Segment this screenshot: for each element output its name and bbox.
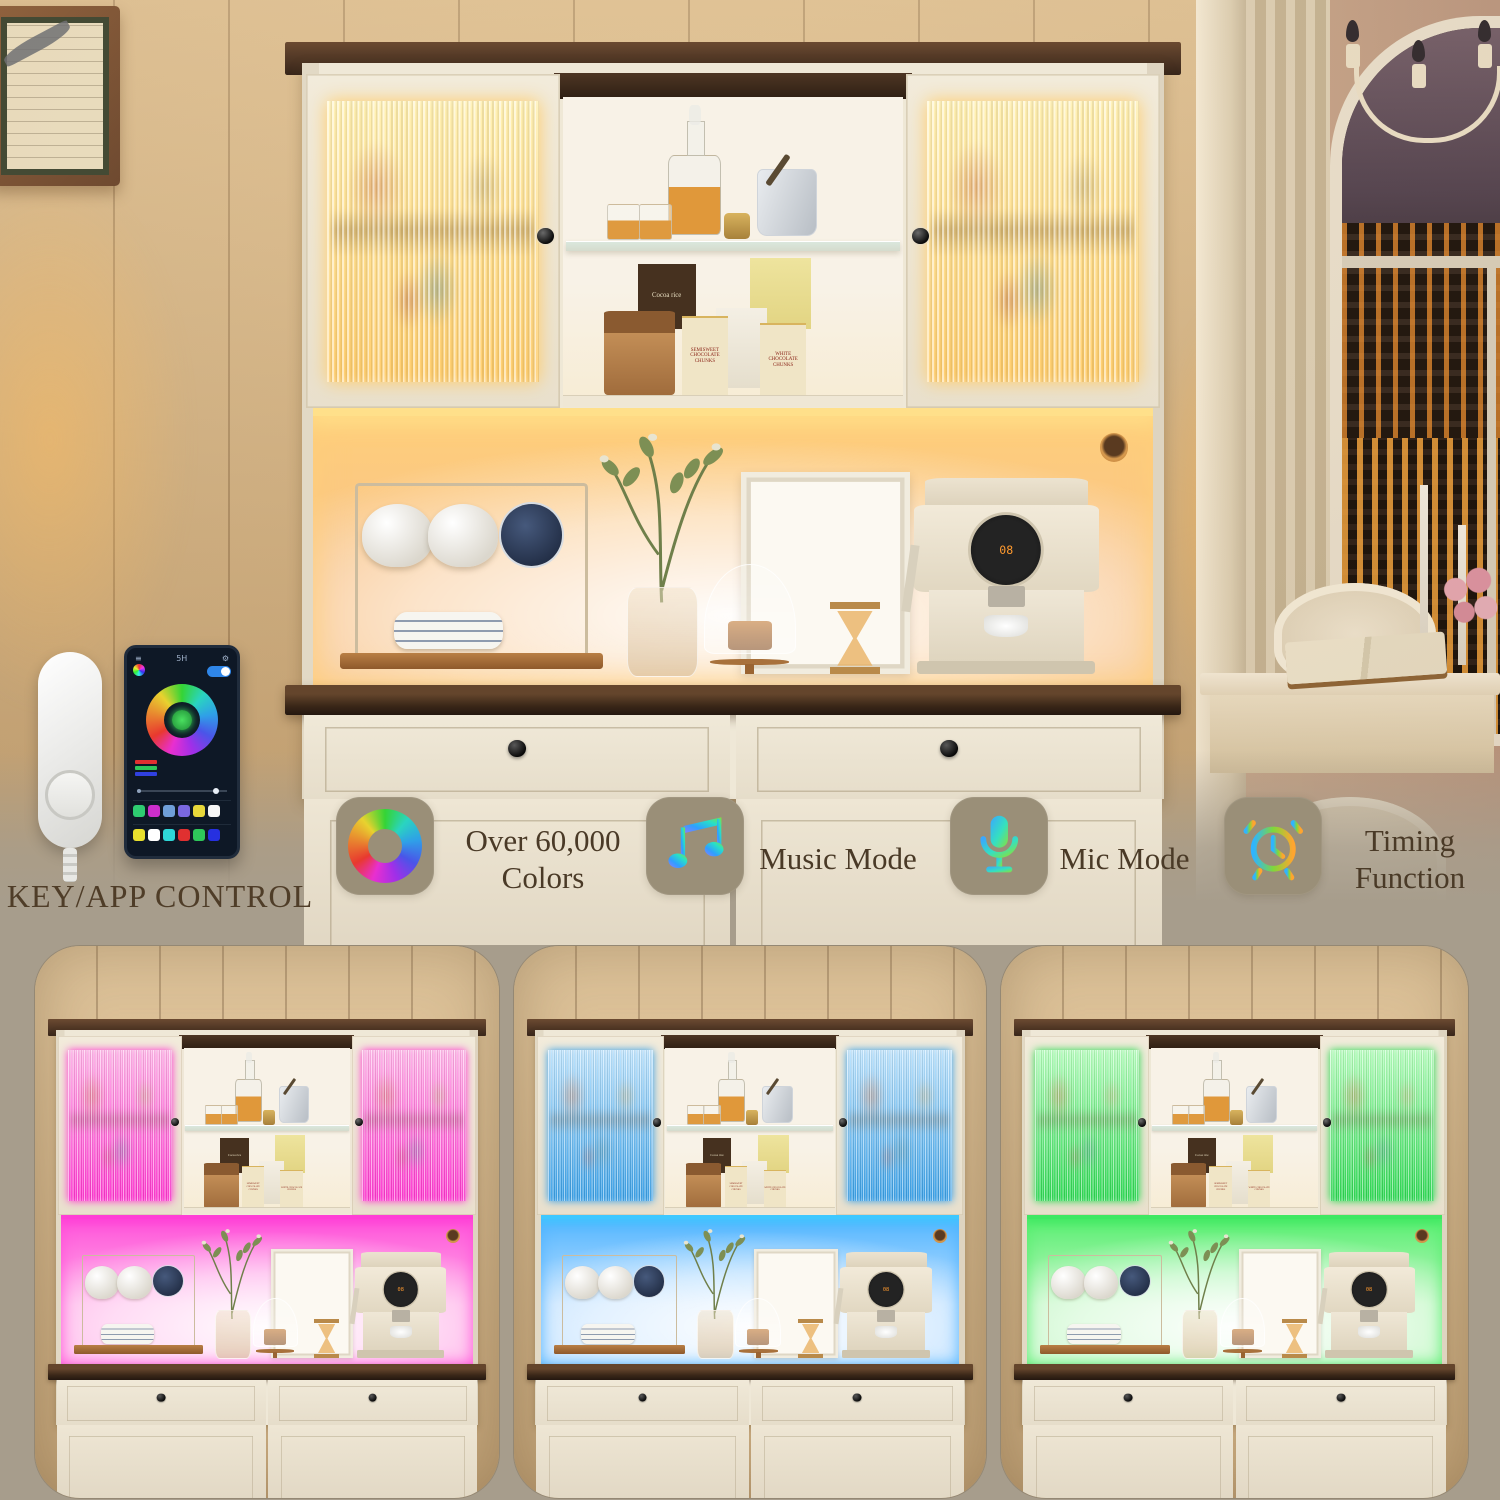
espresso-display-value: 08 [398, 1287, 404, 1293]
drawer-bevel [757, 727, 1141, 793]
door-knob [1323, 1118, 1331, 1126]
espresso-machine: 08 [914, 478, 1099, 675]
hutch-green: Cocoa rice SEMISWEET CHOCOLATE CHUNKS WH… [1020, 1019, 1450, 1425]
espresso-display-value: 08 [999, 543, 1013, 557]
candle-bulb [1412, 40, 1425, 62]
key-app-control-label: KEY/APP CONTROL [4, 878, 316, 915]
lower-door [1023, 1425, 1233, 1499]
drawer-knob [157, 1393, 166, 1402]
whiskey-glass [607, 204, 640, 240]
mug-rack [1048, 1255, 1162, 1354]
door-bevel [69, 1436, 253, 1499]
coffee-mug [362, 504, 432, 566]
door-knob [839, 1118, 847, 1126]
door-bevel [764, 1436, 951, 1499]
ice-bucket [757, 169, 817, 236]
cake-stand-stem [756, 1352, 760, 1357]
glass-door-right [1320, 1036, 1445, 1215]
cable-hole [446, 1229, 460, 1243]
variant-card-blue: Cocoa rice SEMISWEET CHOCOLATE CHUNKS WH… [513, 945, 987, 1499]
coffee-mug [565, 1266, 600, 1299]
espresso-group-head [877, 1310, 895, 1322]
glass-dome [1220, 1298, 1265, 1347]
glass-vase [627, 587, 699, 677]
remote-plug [63, 848, 77, 882]
drawer [268, 1380, 477, 1425]
color-legend [135, 760, 157, 778]
cake-cloche [695, 564, 804, 675]
counter-recess: 08 [1027, 1215, 1441, 1363]
semisweet-label: SEMISWEET CHOCOLATE CHUNKS [682, 347, 728, 366]
plate-stack [581, 1324, 635, 1344]
lower-door [1236, 1425, 1446, 1499]
countertop [1014, 1364, 1456, 1380]
cable-hole [933, 1229, 947, 1243]
paper-bag [204, 1163, 239, 1208]
drawer-knob [508, 740, 526, 758]
mug-rack [82, 1255, 195, 1354]
espresso-group-head [988, 586, 1025, 608]
wood-tray [340, 653, 603, 669]
shelf-base-board [563, 395, 903, 407]
drawer [536, 1380, 748, 1425]
drawer [1023, 1380, 1233, 1425]
door-bevel [281, 1436, 465, 1499]
glass-vase [697, 1310, 734, 1359]
glass-door-left [1024, 1036, 1149, 1215]
power-toggle [207, 666, 231, 677]
espresso-machine: 08 [840, 1252, 932, 1357]
fluted-glass-left [548, 1050, 653, 1201]
cocoa-box-label: Cocoa rice [710, 1154, 723, 1157]
glass-flutes [327, 101, 538, 382]
white-chocolate-label: WHITE CHOCOLATE CHUNKS [1248, 1186, 1271, 1192]
feature-line: Over 60,000 [438, 822, 648, 859]
coffee-mug [428, 504, 498, 566]
product-marketing-image: Cocoa rice SEMISWEET CHOCOLATE CHUNKS WH… [0, 0, 1500, 1500]
remote-button [45, 770, 95, 820]
counter-recess: 08 [541, 1215, 960, 1363]
lower-doors [57, 1425, 477, 1499]
cable-hole [1100, 433, 1129, 462]
cake-stand-stem [273, 1352, 277, 1357]
whiskey-glass [639, 204, 672, 240]
semisweet-chocolate-box: SEMISWEET CHOCOLATE CHUNKS [242, 1166, 264, 1209]
drawer [736, 715, 1162, 799]
mini-color-wheel-icon [133, 664, 145, 676]
coffee-mug [1084, 1266, 1119, 1299]
shelf-base-board [1151, 1207, 1319, 1214]
cake-cloche [731, 1298, 785, 1357]
shelf-base-board [184, 1207, 350, 1214]
glass-door-left [537, 1036, 664, 1215]
menu-icon: ≡ [135, 654, 142, 663]
coffee-mug [117, 1266, 151, 1299]
cocoa-box-label: Cocoa rice [1195, 1154, 1208, 1157]
coffee-mug [598, 1266, 633, 1299]
drawer-knob [638, 1393, 647, 1402]
espresso-display: 08 [869, 1272, 904, 1307]
door-knob [912, 228, 929, 245]
glass-door-right [836, 1036, 963, 1215]
door-knob [171, 1118, 179, 1126]
drawer-knob [940, 740, 958, 758]
lower-doors [536, 1425, 963, 1499]
candle-cup [1346, 44, 1360, 68]
glass-shelf [667, 1125, 833, 1131]
white-chocolate-box: WHITE CHOCOLATE CHUNKS [760, 323, 806, 395]
glass-door-right [906, 74, 1161, 409]
espresso-drip-tray [1325, 1350, 1412, 1357]
plate-stack [101, 1324, 154, 1344]
fluted-glass-left [1035, 1050, 1139, 1201]
window-sash [1342, 256, 1500, 268]
candle-bulb [1478, 20, 1491, 42]
drawer-row [1023, 1380, 1446, 1425]
remote-key [38, 652, 102, 848]
glass-dome [735, 1298, 781, 1347]
drawer-bevel [547, 1386, 738, 1421]
fluted-glass-right [847, 1050, 952, 1201]
cake-stand-stem [1241, 1352, 1245, 1357]
drawer-bevel [325, 727, 709, 793]
cake-stand-stem [745, 664, 754, 674]
mug-rack [562, 1255, 677, 1354]
hutch-blue: Cocoa rice SEMISWEET CHOCOLATE CHUNKS WH… [533, 1019, 967, 1425]
glass-flutes [548, 1050, 653, 1201]
lower-door [57, 1425, 266, 1499]
feature-line: Music Mode [748, 840, 928, 877]
espresso-group-head [392, 1310, 410, 1322]
fluted-glass-right [362, 1050, 465, 1201]
espresso-cup [984, 615, 1028, 637]
glass-vase [1182, 1310, 1218, 1359]
shelf-base-board [665, 1207, 834, 1214]
navy-mug [153, 1266, 183, 1296]
semisweet-chocolate-box: SEMISWEET CHOCOLATE CHUNKS [682, 316, 728, 396]
whiskey-decanter [1203, 1079, 1230, 1123]
plate-stack [1067, 1324, 1121, 1344]
gold-jar [263, 1110, 275, 1124]
glass-shelf [185, 1125, 348, 1131]
app-title: 5H [176, 654, 187, 663]
whiskey-decanter [235, 1079, 262, 1123]
hutch-center-soffit [554, 73, 912, 99]
pink-flowers [1434, 559, 1500, 635]
gear-icon: ⚙ [222, 654, 229, 663]
feature-line: Timing [1330, 822, 1490, 859]
glass-flutes [362, 1050, 465, 1201]
glass-vase [215, 1310, 251, 1359]
glass-flutes [68, 1050, 171, 1201]
drawer-row [57, 1380, 477, 1425]
hutch-cabinet: Cocoa rice SEMISWEET CHOCOLATE CHUNKS WH… [533, 1019, 967, 1425]
drawer-knob [1336, 1393, 1345, 1402]
warm-lamp-glow [0, 170, 190, 710]
cocoa-box-label: Cocoa rice [652, 293, 681, 300]
glass-shelf [566, 241, 899, 251]
semisweet-chocolate-box: SEMISWEET CHOCOLATE CHUNKS [1209, 1166, 1232, 1209]
drawer-row [304, 715, 1162, 799]
white-chocolate-box: WHITE CHOCOLATE CHUNKS [1248, 1170, 1271, 1208]
fluted-glass-left [68, 1050, 171, 1201]
whiskey-glass [1188, 1105, 1205, 1125]
candle-cup [1412, 64, 1426, 88]
hutch-cabinet: Cocoa rice SEMISWEET CHOCOLATE CHUNKS WH… [297, 42, 1169, 799]
mic-mode-tile [950, 797, 1048, 895]
hourglass [1282, 1319, 1307, 1358]
feature-line: Mic Mode [1052, 840, 1197, 877]
music-note-icon [659, 810, 732, 883]
coffee-mug [1051, 1266, 1086, 1299]
glass-door-right [352, 1036, 477, 1215]
semisweet-label: SEMISWEET CHOCOLATE CHUNKS [242, 1183, 264, 1192]
gold-jar [746, 1110, 759, 1124]
countertop [285, 685, 1181, 715]
hutch-cabinet: Cocoa rice SEMISWEET CHOCOLATE CHUNKS WH… [1020, 1019, 1450, 1425]
hourglass [798, 1319, 823, 1358]
drawer-knob [368, 1393, 377, 1402]
door-bevel [1036, 1436, 1221, 1499]
glass-flutes [1330, 1050, 1434, 1201]
whiskey-glass [205, 1105, 222, 1125]
feature-label-mic: Mic Mode [1052, 840, 1197, 877]
white-chocolate-label: WHITE CHOCOLATE CHUNKS [280, 1186, 302, 1192]
espresso-display: 08 [971, 515, 1041, 585]
door-bevel [1248, 1436, 1433, 1499]
countertop [527, 1364, 973, 1380]
color-wheel-icon [348, 809, 422, 883]
door-knob [653, 1118, 661, 1126]
drawer-bevel [279, 1386, 467, 1421]
espresso-machine: 08 [1324, 1252, 1415, 1357]
espresso-drip-tray [842, 1350, 930, 1357]
feature-line: Function [1330, 859, 1490, 896]
drawer-row [536, 1380, 963, 1425]
cocoa-box-label: Cocoa rice [228, 1154, 241, 1157]
espresso-display-value: 08 [1366, 1287, 1372, 1293]
navy-mug [634, 1266, 665, 1297]
framed-artwork [0, 6, 120, 186]
ice-bucket [1246, 1086, 1276, 1123]
espresso-cup [390, 1326, 412, 1338]
variant-card-green: Cocoa rice SEMISWEET CHOCOLATE CHUNKS WH… [1000, 945, 1469, 1499]
open-shelf-section: Cocoa rice SEMISWEET CHOCOLATE CHUNKS WH… [665, 1048, 834, 1214]
chandelier-arm [1354, 66, 1500, 143]
door-bevel [761, 820, 1136, 945]
espresso-cup [1358, 1326, 1380, 1338]
drawer [751, 1380, 963, 1425]
ice-bucket [762, 1086, 793, 1123]
glass-flutes [927, 101, 1138, 382]
feature-label-colors: Over 60,000 Colors [438, 822, 648, 896]
espresso-group-head [1360, 1310, 1378, 1322]
wood-tray [1040, 1345, 1170, 1354]
lower-doors [1023, 1425, 1446, 1499]
espresso-drip-tray [917, 661, 1095, 675]
white-chocolate-box: WHITE CHOCOLATE CHUNKS [764, 1170, 787, 1208]
feature-label-music: Music Mode [748, 840, 928, 877]
feature-line: Colors [438, 859, 648, 896]
variant-card-pink: Cocoa rice SEMISWEET CHOCOLATE CHUNKS WH… [34, 945, 500, 1499]
white-chocolate-label: WHITE CHOCOLATE CHUNKS [760, 351, 806, 370]
espresso-display-value: 08 [883, 1287, 889, 1293]
candle-cup [1478, 44, 1492, 68]
semisweet-chocolate-box: SEMISWEET CHOCOLATE CHUNKS [725, 1166, 748, 1209]
countertop [48, 1364, 487, 1380]
fluted-glass-right [927, 101, 1138, 382]
drawer [304, 715, 730, 799]
counter-recess: 08 [313, 408, 1154, 685]
paper-bag [686, 1163, 722, 1208]
hourglass [830, 602, 880, 674]
chandelier [1346, 8, 1500, 183]
phone-app: ≡ 5H ⚙ [124, 645, 240, 859]
feature-label-timing: Timing Function [1330, 822, 1490, 896]
lower-door [536, 1425, 748, 1499]
door-knob [537, 228, 554, 245]
open-shelf-section: Cocoa rice SEMISWEET CHOCOLATE CHUNKS WH… [563, 97, 903, 407]
cake-cloche [1216, 1298, 1270, 1357]
lower-door [751, 1425, 963, 1499]
ice-bucket [279, 1086, 309, 1123]
cable-hole [1415, 1229, 1429, 1243]
plate-stack [394, 612, 503, 649]
whiskey-glass [1172, 1105, 1189, 1125]
drawer [57, 1380, 266, 1425]
wheel-center-wrap [146, 684, 218, 756]
espresso-display: 08 [1352, 1272, 1387, 1307]
glass-dome [253, 1298, 298, 1347]
wood-tray [74, 1345, 203, 1354]
semisweet-label: SEMISWEET CHOCOLATE CHUNKS [1209, 1183, 1232, 1192]
paper-bag [604, 311, 675, 395]
whiskey-glass [703, 1105, 720, 1125]
glass-flutes [847, 1050, 952, 1201]
drawer [1236, 1380, 1446, 1425]
candle-bulb [1346, 20, 1359, 42]
drawer-knob [853, 1393, 862, 1402]
coffee-mug [85, 1266, 119, 1299]
white-chocolate-label: WHITE CHOCOLATE CHUNKS [764, 1186, 787, 1192]
glass-door-left [58, 1036, 183, 1215]
navy-mug [501, 504, 562, 565]
open-shelf-section: Cocoa rice SEMISWEET CHOCOLATE CHUNKS WH… [1151, 1048, 1319, 1214]
drawer-bevel [762, 1386, 953, 1421]
timing-function-tile [1224, 797, 1322, 895]
white-chocolate-box: WHITE CHOCOLATE CHUNKS [280, 1170, 302, 1208]
glass-flutes [1035, 1050, 1139, 1201]
open-shelf-section: Cocoa rice SEMISWEET CHOCOLATE CHUNKS WH… [184, 1048, 350, 1214]
drawer-bevel [1034, 1386, 1223, 1421]
lower-door [268, 1425, 477, 1499]
fluted-glass-right [1330, 1050, 1434, 1201]
hutch-cabinet: Cocoa rice SEMISWEET CHOCOLATE CHUNKS WH… [54, 1019, 481, 1425]
fluted-glass-left [327, 101, 538, 382]
wheel-center-color [172, 710, 192, 730]
whiskey-glass [221, 1105, 238, 1125]
glass-dome [704, 564, 796, 655]
whiskey-glass [687, 1105, 704, 1125]
paper-bag [1171, 1163, 1206, 1208]
alarm-clock-icon [1237, 810, 1310, 883]
semisweet-label: SEMISWEET CHOCOLATE CHUNKS [725, 1183, 748, 1192]
espresso-drip-tray [357, 1350, 444, 1357]
espresso-machine: 08 [355, 1252, 446, 1357]
preset-swatch-row [133, 800, 231, 817]
counter-recess: 08 [61, 1215, 473, 1363]
espresso-cup [875, 1326, 897, 1338]
drawer-knob [1124, 1393, 1133, 1402]
hourglass [314, 1319, 339, 1358]
whiskey-decanter [718, 1079, 745, 1123]
microphone-icon [963, 810, 1036, 883]
color-wheel-tile [336, 797, 434, 895]
drawer-bevel [1246, 1386, 1435, 1421]
music-mode-tile [646, 797, 744, 895]
whiskey-decanter [668, 155, 721, 235]
door-knob [1138, 1118, 1146, 1126]
brightness-slider [137, 790, 227, 792]
hutch-pink: Cocoa rice SEMISWEET CHOCOLATE CHUNKS WH… [54, 1019, 481, 1425]
cake-cloche [248, 1298, 301, 1357]
gold-jar [724, 213, 750, 239]
glass-shelf [1152, 1125, 1316, 1131]
drawer-bevel [67, 1386, 255, 1421]
glass-door-left [306, 74, 561, 409]
navy-mug [1120, 1266, 1150, 1296]
gold-jar [1230, 1110, 1243, 1124]
mug-rack [355, 483, 588, 669]
preset-swatch-row [133, 824, 231, 841]
door-bevel [549, 1436, 736, 1499]
wood-tray [554, 1345, 685, 1354]
hutch-warm-white: Cocoa rice SEMISWEET CHOCOLATE CHUNKS WH… [297, 42, 1169, 799]
